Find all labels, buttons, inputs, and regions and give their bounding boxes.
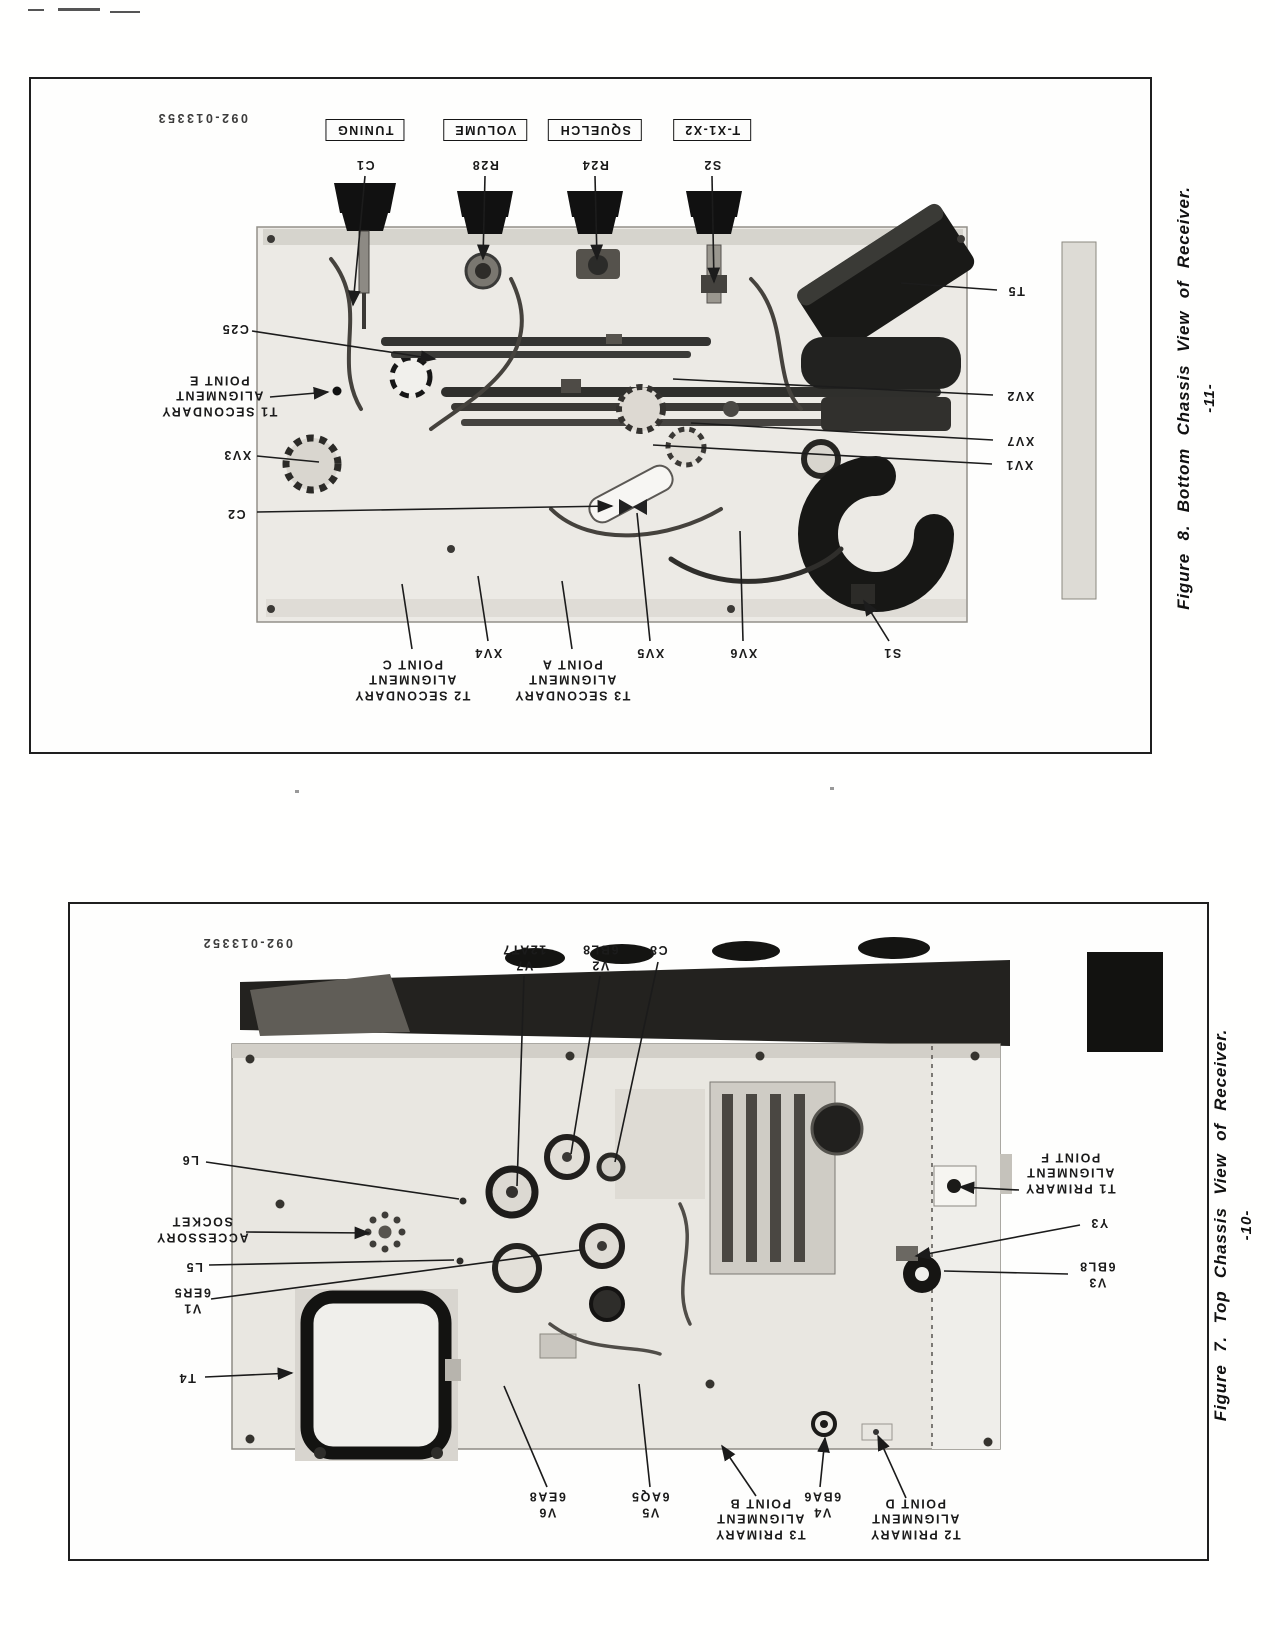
control-label-tuning: TUNING bbox=[326, 119, 405, 141]
control-label-squelch: SQUELCH bbox=[548, 119, 642, 141]
control-label-volume: VOLUME bbox=[443, 119, 527, 141]
callout-line: 6BL8 bbox=[1079, 1258, 1116, 1274]
callout-xv4: XV4 bbox=[474, 644, 502, 660]
callout-line: POINT D bbox=[869, 1495, 960, 1511]
callout-line: V5 bbox=[630, 1504, 669, 1520]
callout-v6: V6 6EA8 bbox=[528, 1488, 566, 1519]
callout-line: T3 PRIMARY bbox=[714, 1526, 805, 1542]
callout-line: ALIGNMENT bbox=[161, 387, 278, 403]
callout-line: 6EA8 bbox=[528, 1488, 566, 1504]
figure8-caption-text: Figure 8. Bottom Chassis View of Receive… bbox=[1174, 186, 1194, 610]
callout-line: 6AQ5 bbox=[630, 1488, 669, 1504]
alignment-point-e-dot bbox=[333, 387, 342, 396]
callout-line: V3 bbox=[1079, 1274, 1116, 1290]
callout-c1: C1 bbox=[355, 156, 374, 172]
callout-v4: V4 6BA6 bbox=[803, 1488, 841, 1519]
control-label-txtal: T-X1-X2 bbox=[673, 119, 751, 141]
callout-s2: S2 bbox=[703, 156, 722, 172]
figure7-page-number: -10- bbox=[1238, 1029, 1255, 1421]
scan-mark bbox=[830, 787, 834, 790]
callout-v2: V2 6BL8 bbox=[582, 941, 619, 972]
callout-xv1: XV1 bbox=[1005, 456, 1033, 472]
callout-line: 6BA6 bbox=[803, 1488, 841, 1504]
callout-line: T2 SECONDARY bbox=[354, 687, 471, 703]
callout-line: POINT B bbox=[714, 1495, 805, 1511]
callout-t4: T4 bbox=[178, 1369, 196, 1385]
callout-t3-primary: T3 PRIMARY ALIGNMENT POINT B bbox=[714, 1495, 805, 1542]
scan-mark bbox=[295, 790, 299, 793]
callout-line: 12AT7 bbox=[502, 941, 547, 957]
callout-line: ALIGNMENT bbox=[514, 671, 631, 687]
callout-line: POINT A bbox=[514, 656, 631, 672]
callout-line: T1 PRIMARY bbox=[1024, 1180, 1115, 1196]
callout-line: T1 SECONDARY bbox=[161, 403, 278, 419]
scan-mark bbox=[58, 8, 100, 11]
callout-t3-secondary: T3 SECONDARY ALIGNMENT POINT A bbox=[514, 656, 631, 703]
callout-y3: Y3 bbox=[1090, 1214, 1109, 1230]
callout-t1-primary: T1 PRIMARY ALIGNMENT POINT F bbox=[1024, 1149, 1115, 1196]
figure7-frame: 092-013352 V7 12AT7 V2 6BL8 C8 L6 ACCESS… bbox=[68, 902, 1209, 1561]
callout-s1: S1 bbox=[883, 644, 902, 660]
callout-line: POINT C bbox=[354, 656, 471, 672]
scan-mark bbox=[28, 9, 44, 11]
callout-line: POINT E bbox=[161, 372, 278, 388]
figure7-part-number: 092-013352 bbox=[201, 936, 293, 950]
callout-line: ALIGNMENT bbox=[1024, 1164, 1115, 1180]
callout-line: V4 bbox=[803, 1504, 841, 1520]
callout-line: POINT F bbox=[1024, 1149, 1115, 1165]
callout-t2-primary: T2 PRIMARY ALIGNMENT POINT D bbox=[869, 1495, 960, 1542]
callout-t2-secondary: T2 SECONDARY ALIGNMENT POINT C bbox=[354, 656, 471, 703]
figure8-frame: 092-013353 TUNING VOLUME SQUELCH T-X1-X2… bbox=[29, 77, 1152, 754]
callout-line: V7 bbox=[502, 957, 547, 973]
callout-c25: C25 bbox=[221, 320, 249, 336]
scanned-manual-page: 092-013353 TUNING VOLUME SQUELCH T-X1-X2… bbox=[0, 0, 1275, 1650]
callout-c8: C8 bbox=[648, 941, 667, 957]
callout-v7: V7 12AT7 bbox=[502, 941, 547, 972]
callout-line: V2 bbox=[582, 957, 619, 973]
callout-line: V1 bbox=[173, 1300, 211, 1316]
figure7-caption: Figure 7. Top Chassis View of Receiver. … bbox=[1211, 1029, 1255, 1421]
figure8-part-number: 092-013353 bbox=[156, 111, 248, 125]
callout-t1-secondary: T1 SECONDARY ALIGNMENT POINT E bbox=[161, 372, 278, 419]
callout-line: T3 SECONDARY bbox=[514, 687, 631, 703]
figure8-caption: Figure 8. Bottom Chassis View of Receive… bbox=[1174, 186, 1218, 610]
callout-line: T2 PRIMARY bbox=[869, 1526, 960, 1542]
figure8-page-number: -11- bbox=[1201, 186, 1218, 610]
callout-xv2: XV2 bbox=[1006, 387, 1034, 403]
callout-accessory-socket: ACCESSORY SOCKET bbox=[155, 1213, 248, 1244]
callout-xv7: XV7 bbox=[1006, 432, 1034, 448]
callout-l6: L6 bbox=[181, 1151, 199, 1167]
callout-r24: R24 bbox=[581, 156, 609, 172]
callout-line: 6BL8 bbox=[582, 941, 619, 957]
callout-line: ALIGNMENT bbox=[354, 671, 471, 687]
callout-r28: R28 bbox=[471, 156, 499, 172]
callout-xv5: XV5 bbox=[636, 644, 664, 660]
callout-xv6: XV6 bbox=[729, 644, 757, 660]
callout-line: ACCESSORY bbox=[155, 1229, 248, 1245]
callout-line: ALIGNMENT bbox=[869, 1510, 960, 1526]
callout-line: ALIGNMENT bbox=[714, 1510, 805, 1526]
scan-mark bbox=[110, 11, 140, 13]
callout-t5: T5 bbox=[1007, 282, 1025, 298]
callout-xv3: XV3 bbox=[223, 446, 251, 462]
callout-c2: C2 bbox=[226, 505, 245, 521]
callout-line: 6ER5 bbox=[173, 1284, 211, 1300]
callout-l5: L5 bbox=[185, 1258, 203, 1274]
callout-line: SOCKET bbox=[155, 1213, 248, 1229]
callout-v1: V1 6ER5 bbox=[173, 1284, 211, 1315]
callout-v5: V5 6AQ5 bbox=[630, 1488, 669, 1519]
callout-v3: V3 6BL8 bbox=[1079, 1258, 1116, 1289]
figure7-caption-text: Figure 7. Top Chassis View of Receiver. bbox=[1211, 1029, 1231, 1421]
callout-line: V6 bbox=[528, 1504, 566, 1520]
